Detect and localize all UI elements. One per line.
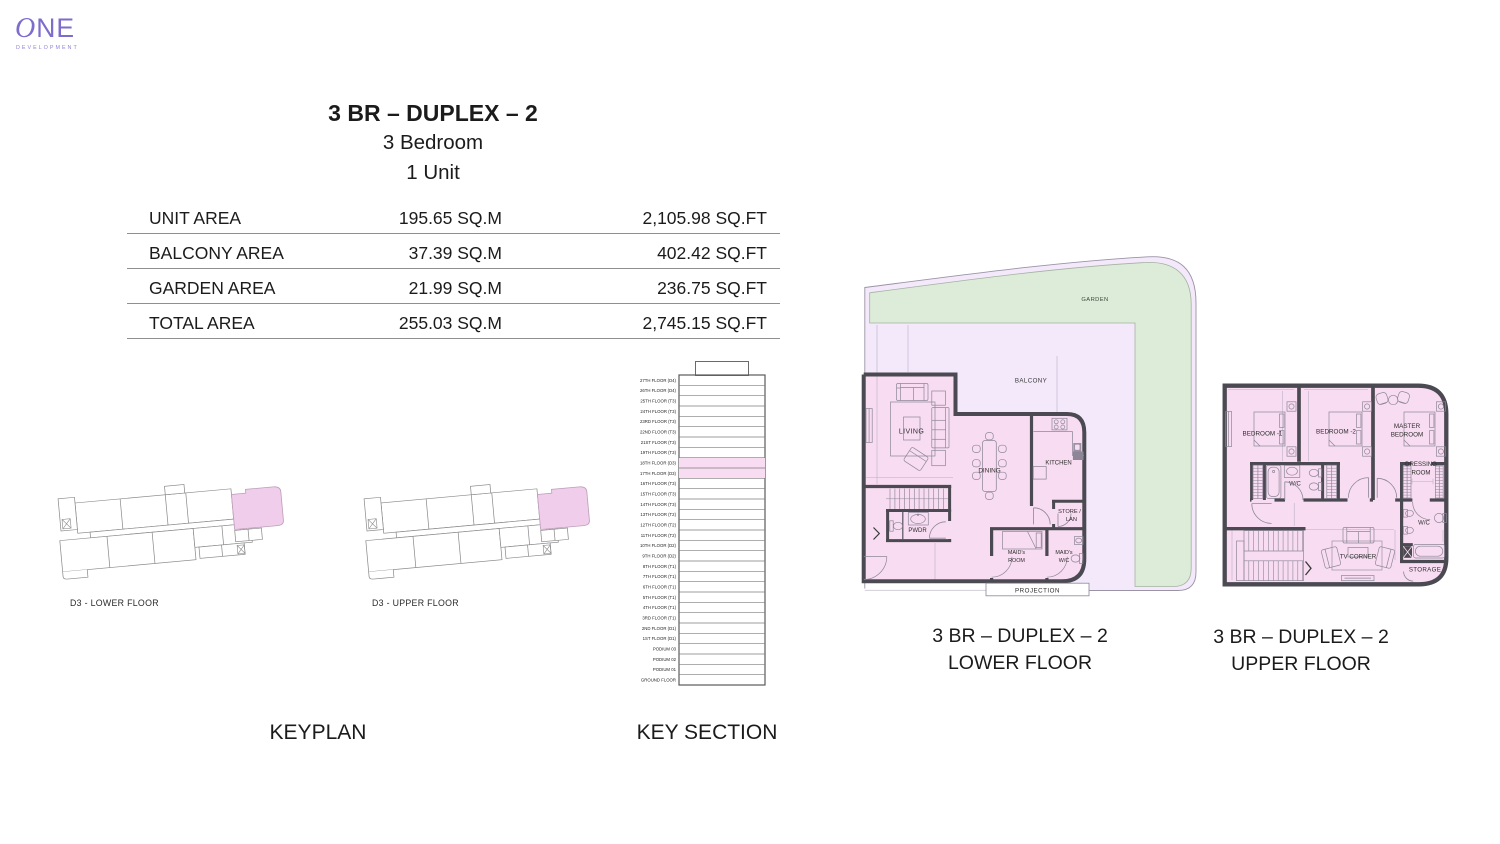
svg-text:24TH FLOOR (T3): 24TH FLOOR (T3): [640, 409, 676, 414]
svg-text:14TH FLOOR (T3): 14TH FLOOR (T3): [640, 502, 676, 507]
svg-text:BEDROOM -2: BEDROOM -2: [1316, 429, 1356, 436]
svg-text:DRESSING: DRESSING: [1405, 461, 1437, 468]
svg-text:STORAGE: STORAGE: [1409, 567, 1441, 574]
svg-text:W/C: W/C: [1289, 482, 1301, 488]
svg-text:PODIUM 02: PODIUM 02: [653, 657, 677, 662]
svg-text:12TH FLOOR (T2): 12TH FLOOR (T2): [640, 522, 676, 527]
svg-text:25TH FLOOR (T3): 25TH FLOOR (T3): [640, 398, 676, 403]
svg-text:2ND FLOOR (D1): 2ND FLOOR (D1): [642, 626, 677, 631]
svg-text:TV CORNER: TV CORNER: [1340, 554, 1377, 561]
svg-text:27TH FLOOR (D4): 27TH FLOOR (D4): [640, 378, 677, 383]
svg-text:7TH FLOOR (T1): 7TH FLOOR (T1): [643, 574, 677, 579]
svg-text:ROOM: ROOM: [1412, 469, 1431, 476]
svg-text:1ST FLOOR (D1): 1ST FLOOR (D1): [643, 636, 677, 641]
svg-text:23RD FLOOR (T3): 23RD FLOOR (T3): [640, 419, 677, 424]
svg-text:GROUND FLOOR: GROUND FLOOR: [641, 677, 676, 682]
svg-text:13TH FLOOR (T2): 13TH FLOOR (T2): [640, 512, 676, 517]
svg-text:18TH FLOOR (D3): 18TH FLOOR (D3): [640, 460, 677, 465]
svg-text:KITCHEN: KITCHEN: [1045, 461, 1071, 467]
svg-text:MAID’s: MAID’s: [1055, 550, 1073, 556]
svg-text:BEDROOM: BEDROOM: [1391, 432, 1424, 439]
svg-text:LIVING: LIVING: [899, 429, 924, 436]
svg-text:9TH FLOOR (D2): 9TH FLOOR (D2): [642, 553, 676, 558]
svg-text:MAID’s: MAID’s: [1008, 550, 1026, 556]
svg-text:16TH FLOOR (T3): 16TH FLOOR (T3): [640, 481, 676, 486]
svg-text:22ND FLOOR (T3): 22ND FLOOR (T3): [640, 429, 677, 434]
svg-text:5TH FLOOR (T1): 5TH FLOOR (T1): [643, 595, 677, 600]
svg-text:PWDR: PWDR: [908, 528, 927, 534]
svg-text:DINING: DINING: [978, 468, 1000, 475]
svg-text:10TH FLOOR (D2): 10TH FLOOR (D2): [640, 543, 677, 548]
svg-text:4TH FLOOR (T1): 4TH FLOOR (T1): [643, 605, 677, 610]
svg-text:26TH FLOOR (D4): 26TH FLOOR (D4): [640, 388, 677, 393]
svg-text:W/C: W/C: [1059, 558, 1070, 564]
svg-text:11TH FLOOR (T2): 11TH FLOOR (T2): [641, 533, 677, 538]
svg-text:BALCONY: BALCONY: [1015, 378, 1047, 385]
svg-text:STORE /: STORE /: [1058, 509, 1081, 515]
svg-text:MASTER: MASTER: [1394, 423, 1421, 430]
svg-text:15TH FLOOR (T3): 15TH FLOOR (T3): [640, 491, 676, 496]
svg-text:17TH FLOOR (D3): 17TH FLOOR (D3): [640, 471, 677, 476]
svg-text:PODIUM 03: PODIUM 03: [653, 646, 677, 651]
svg-text:3RD FLOOR (T1): 3RD FLOOR (T1): [642, 615, 676, 620]
svg-text:ROOM: ROOM: [1008, 558, 1025, 564]
svg-text:19TH FLOOR (T3): 19TH FLOOR (T3): [640, 450, 676, 455]
svg-text:6TH FLOOR (T1): 6TH FLOOR (T1): [643, 584, 677, 589]
svg-text:BEDROOM -1: BEDROOM -1: [1243, 431, 1283, 438]
svg-text:GARDEN: GARDEN: [1081, 297, 1108, 303]
svg-text:LAN: LAN: [1066, 517, 1077, 523]
svg-text:PROJECTION: PROJECTION: [1015, 587, 1060, 594]
svg-text:21ST FLOOR (T3): 21ST FLOOR (T3): [641, 440, 677, 445]
svg-text:PODIUM 01: PODIUM 01: [653, 667, 677, 672]
svg-text:8TH FLOOR (T1): 8TH FLOOR (T1): [643, 564, 677, 569]
svg-text:W/C: W/C: [1418, 521, 1430, 527]
